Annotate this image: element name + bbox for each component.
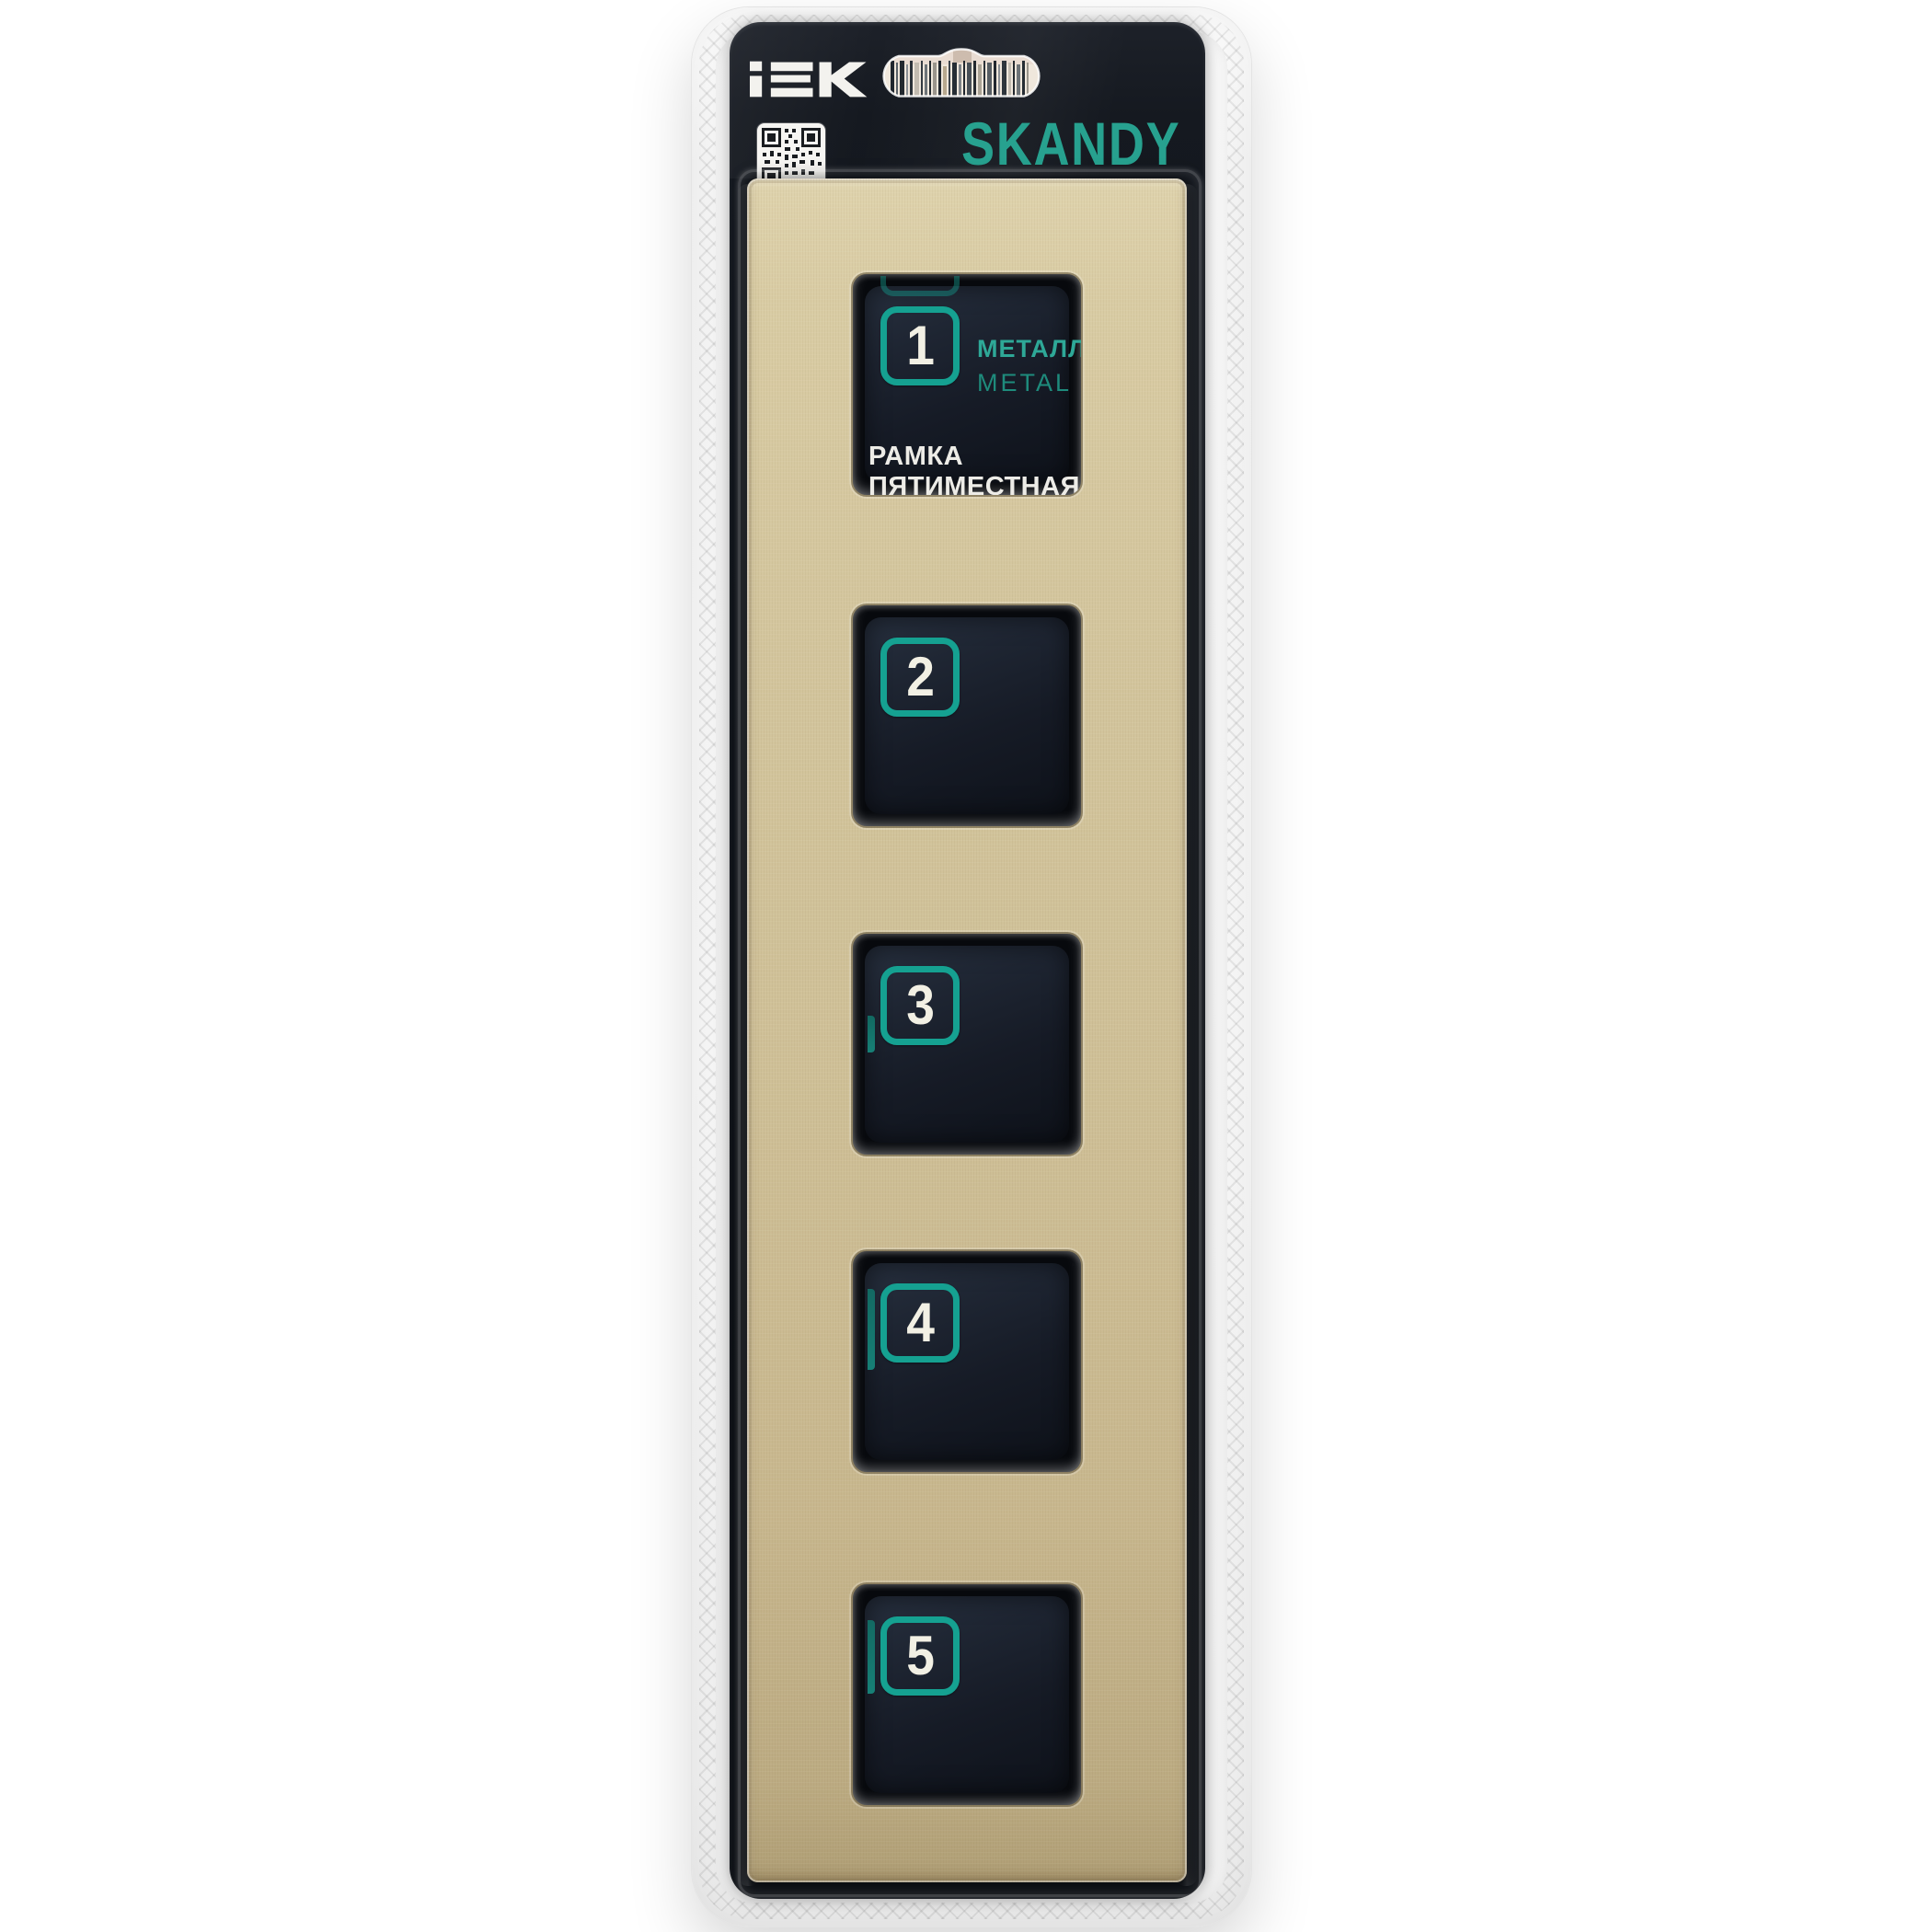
frame-window-2: 2: [853, 605, 1081, 826]
frame-window-3: 3: [853, 934, 1081, 1155]
product-photo: iek.ru SKANDY: [0, 0, 1932, 1932]
metal-frame: 1 МЕТАЛЛ METAL РАМКА ПЯТИМЕСТНАЯ ПЯТИМЕС…: [747, 178, 1187, 1882]
slot-number: 2: [906, 650, 934, 705]
hidden-badge-fragment: [868, 1620, 875, 1694]
material-en: METAL: [977, 368, 1081, 399]
frame-window-4: 4: [853, 1251, 1081, 1472]
hidden-badge-fragment: [868, 1016, 875, 1052]
blister-pack: iek.ru SKANDY: [692, 7, 1251, 1926]
window-cavity: 4: [865, 1263, 1069, 1460]
slot-number: 4: [906, 1295, 934, 1351]
slot-number-badge: 2: [880, 638, 960, 717]
slot-number: 1: [906, 318, 934, 374]
material-ru: МЕТАЛЛ: [977, 334, 1081, 365]
slot-number-badge: 5: [880, 1616, 960, 1696]
window-cavity: 2: [865, 617, 1069, 814]
product-name: РАМКА ПЯТИМЕСТНАЯ ПЯТИМЕСТНАЯ: [868, 442, 1080, 495]
product-name-line2: ПЯТИМЕСТНАЯ: [868, 472, 1080, 495]
iek-logo: [750, 59, 869, 99]
frame-window-1: 1 МЕТАЛЛ METAL РАМКА ПЯТИМЕСТНАЯ ПЯТИМЕС…: [853, 274, 1081, 495]
slot-number: 3: [906, 978, 934, 1033]
hidden-badge-fragment: [880, 276, 960, 296]
window-cavity: 3: [865, 946, 1069, 1143]
slot-number: 5: [906, 1628, 934, 1684]
slot-number-badge: 3: [880, 966, 960, 1045]
slot-number-badge: 4: [880, 1283, 960, 1363]
hang-hole-icon: [874, 48, 1049, 98]
hidden-badge-fragment: [868, 1289, 875, 1370]
material-label: МЕТАЛЛ METAL: [977, 334, 1081, 399]
slot-number-badge: 1: [880, 306, 960, 385]
series-title: SKANDY: [961, 109, 1180, 178]
frame-window-5: 5: [853, 1584, 1081, 1805]
product-name-line1: РАМКА: [868, 442, 1080, 472]
window-cavity: 5: [865, 1596, 1069, 1793]
